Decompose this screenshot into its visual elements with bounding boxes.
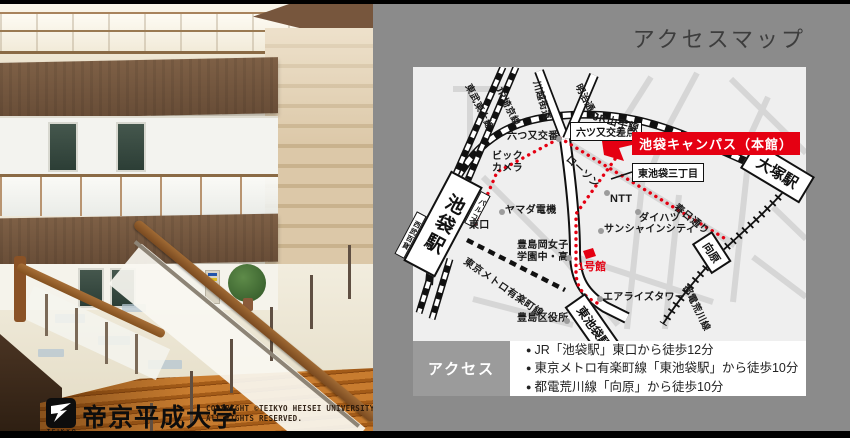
photo-mid-glass-railing [0,174,278,216]
poi-dot [564,318,570,324]
poi-dot [499,209,505,215]
photo-railing-post [105,322,108,364]
photo-door [116,122,146,172]
photo-railing-post [45,294,48,336]
photo-railing-post [310,275,313,329]
bullet-icon: ● [526,363,531,373]
poi-toshimagaoka-school: 豊島岡女子 学園中・高 [517,240,569,263]
campus-interior-photo: TEIKYO 帝京平成大学 COPYRIGHT ©TEIKYO HEISEI U… [0,4,373,431]
poi-east-exit: 東口 [469,220,490,232]
photo-railing-post [230,339,233,393]
photo-floor-tile [38,349,64,357]
poi-sunshine-city: サンシャインシティ [604,224,696,236]
copyright-line-2: All RIGHTS RESERVED. [206,414,373,424]
poi-daihatsu: ダイハツ [639,213,680,225]
campus-label: 池袋キャンパス（本館） [632,132,800,155]
photo-railing-post [75,308,78,350]
copyright-line-1: COPYRIGHT ©TEIKYO HEISEI UNIVERSITY. [206,404,373,414]
access-map: 池袋駅 パルコ 西武百貨 大塚駅 東池袋駅 向原 六ツ又交差点 東池袋三丁目 池… [413,67,806,341]
access-section: アクセス ●JR「池袋駅」東口から徒歩12分 ●東京メトロ有楽町線「東池袋駅」か… [413,341,806,396]
access-item-metro: ●東京メトロ有楽町線「東池袋駅」から徒歩10分 [526,359,802,377]
poi-dot [566,255,572,261]
bottom-border-bar [0,431,850,438]
page-title: アクセスマップ [520,22,806,54]
poi-yamada: ヤマダ電機 [505,205,557,217]
access-heading: アクセス [413,341,510,396]
bullet-icon: ● [526,382,531,392]
poi-koban: 六つ又交番 [507,131,559,143]
copyright-text: COPYRIGHT ©TEIKYO HEISEI UNIVERSITY. All… [206,404,373,424]
photo-railing-post [135,334,138,374]
access-item-jr: ●JR「池袋駅」東口から徒歩12分 [526,341,802,359]
top-border-bar [0,0,850,4]
access-item-toden: ●都電荒川線「向原」から徒歩10分 [526,378,802,396]
teikyo-logo-icon [46,398,76,428]
photo-door [48,122,78,172]
poi-dot [604,190,610,196]
poi-ward-office: 豊島区役所 [517,313,569,325]
bullet-icon: ● [526,345,531,355]
building1-label: 1号館 [578,258,606,274]
poi-airise-tower: エアライズタワー [603,292,685,304]
access-directions-list: ●JR「池袋駅」東口から徒歩12分 ●東京メトロ有楽町線「東池袋駅」から徒歩10… [510,341,806,396]
photo-marble-wall [265,28,373,290]
poi-dot [598,228,604,234]
poi-dot [556,136,562,142]
poi-dot [597,296,603,302]
poi-biccamera: ビック カメラ [492,151,523,174]
photo-railing-post [348,245,351,299]
photo-upper-rail [0,30,300,32]
photo-upper-glass-railing [0,12,300,54]
photo-wood-balcony-band [0,57,278,119]
district-box: 東池袋三丁目 [632,163,704,182]
poi-dot [635,209,641,215]
poi-ntt: NTT [610,193,632,206]
